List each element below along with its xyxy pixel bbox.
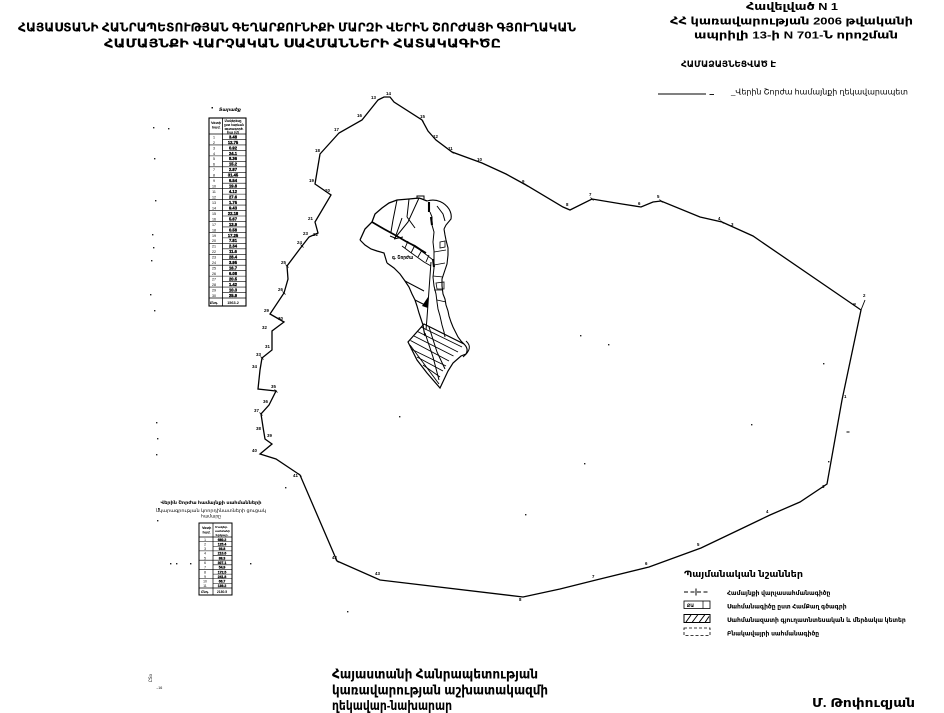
svg-text:Հայաստանի Հանրապետության: Հայաստանի Հանրապետության [332, 667, 538, 682]
svg-text:ՀԱՅԱՍՏԱՆԻ ՀԱՆՐԱՊԵՏՈՒԹՅԱՆ ԳԵՂԱՐ: ՀԱՅԱՍՏԱՆԻ ՀԱՆՐԱՊԵՏՈՒԹՅԱՆ ԳԵՂԱՐՔՈՒՆԻՔԻ ՄԱ… [18, 21, 576, 35]
svg-text:3.48: 3.48 [229, 134, 238, 139]
svg-text:10.3: 10.3 [229, 287, 238, 292]
svg-text:12: 12 [433, 134, 438, 139]
svg-text:4: 4 [204, 552, 206, 556]
svg-text:9: 9 [213, 179, 215, 183]
svg-text:13.9: 13.9 [229, 222, 238, 227]
svg-text:9: 9 [204, 575, 206, 579]
svg-text:Սահմանագիծը ըստ ՀամՔաղ գծագրի: Սահմանագիծը ըստ ՀամՔաղ գծագրի [727, 605, 847, 611]
svg-text:27: 27 [212, 278, 216, 282]
svg-text:4: 4 [213, 152, 215, 156]
svg-text:19.8: 19.8 [229, 184, 238, 189]
svg-text:համ.: համ. [203, 531, 211, 535]
svg-text:ՀԱՄԱՅՆՔԻ ՎԱՐՉԱԿԱՆ ՍԱՀՄԱՆՆԵՐԻ: ՀԱՄԱՅՆՔԻ ՎԱՐՉԱԿԱՆ ՍԱՀՄԱՆՆԵՐԻ ՀԱՏԱԿԱԳԻԾԸ [104, 37, 501, 51]
svg-text:29: 29 [264, 308, 269, 313]
svg-text:կառավարության աշխատակազմի: կառավարության աշխատակազմի [332, 683, 548, 698]
svg-text:5: 5 [213, 157, 215, 161]
svg-text:39: 39 [267, 433, 272, 438]
svg-text:11: 11 [448, 146, 453, 151]
svg-text:նկարագրության կոորդինատների ցո: նկարագրության կոորդինատների ցուցակ [155, 508, 266, 513]
svg-text:28: 28 [212, 283, 216, 287]
svg-text:15: 15 [420, 114, 425, 119]
svg-text:10: 10 [212, 185, 216, 189]
svg-text:38: 38 [256, 426, 261, 431]
svg-text:Սահմանազատի գյուղատնտեսական և: Սահմանազատի գյուղատնտեսական և մերձակա կե… [727, 618, 906, 624]
svg-text:12.75: 12.75 [228, 140, 239, 145]
svg-text:43: 43 [375, 571, 380, 576]
svg-text:25: 25 [212, 267, 216, 271]
svg-text:Ընդ.: Ընդ. [210, 301, 218, 305]
svg-text:2.34: 2.34 [229, 244, 238, 249]
svg-text:1.75: 1.75 [229, 200, 238, 205]
svg-text:172.5: 172.5 [218, 570, 227, 574]
svg-text:երկար.: երկար. [216, 533, 229, 537]
svg-text:2: 2 [204, 542, 206, 546]
svg-text:210.6: 210.6 [218, 552, 227, 556]
svg-text:29: 29 [212, 288, 216, 292]
svg-text:12: 12 [212, 196, 216, 200]
svg-text:16: 16 [212, 217, 216, 221]
svg-text:5.67: 5.67 [229, 216, 238, 221]
svg-text:16: 16 [357, 113, 362, 118]
svg-text:գ. Շորժա: գ. Շորժա [392, 255, 413, 261]
svg-text:24: 24 [212, 261, 216, 265]
svg-text:Ընդ.: Ընդ. [201, 590, 209, 594]
svg-text:11: 11 [203, 584, 207, 588]
svg-text:30: 30 [278, 316, 283, 321]
svg-text:25.9: 25.9 [229, 293, 238, 298]
svg-text:Հավելված N 1: Հավելված N 1 [746, 1, 838, 13]
svg-text:Պայմանական նշաններ: Պայմանական նշաններ [684, 569, 803, 579]
svg-text:54.9: 54.9 [219, 566, 226, 570]
svg-text:8: 8 [204, 570, 206, 574]
svg-text:66.7: 66.7 [219, 580, 226, 584]
svg-text:93.8: 93.8 [219, 547, 226, 551]
svg-text:20: 20 [325, 188, 330, 193]
svg-text:88.3: 88.3 [219, 556, 226, 560]
svg-text:21: 21 [212, 245, 216, 249]
svg-text:15.2: 15.2 [229, 162, 238, 167]
svg-text:16.7: 16.7 [229, 266, 238, 271]
svg-text:18: 18 [315, 148, 320, 153]
svg-text:ՔԱ: ՔԱ [687, 603, 694, 608]
svg-text:ՀՀ կառավարության 2006 թվականի: ՀՀ կառավարության 2006 թվականի [670, 16, 913, 28]
svg-text:0.92: 0.92 [229, 145, 238, 150]
svg-text:15: 15 [212, 212, 216, 216]
svg-text:7: 7 [213, 168, 215, 172]
svg-text:11.6: 11.6 [229, 249, 237, 254]
svg-text:26: 26 [278, 287, 283, 292]
svg-text:37: 37 [254, 408, 259, 413]
svg-text:25: 25 [281, 260, 286, 265]
svg-text:17: 17 [212, 223, 216, 227]
svg-text:23: 23 [212, 256, 216, 260]
svg-text:ՀԱՄԱՁԱՅՆԵՑՎԱԾ Է: ՀԱՄԱՁԱՅՆԵՑՎԱԾ Է [681, 59, 776, 69]
svg-text:18: 18 [212, 228, 216, 232]
svg-text:13: 13 [212, 201, 216, 205]
svg-text:23: 23 [303, 231, 308, 236]
svg-text:Կետի: Կետի [202, 526, 211, 530]
svg-text:24: 24 [297, 240, 302, 245]
svg-text:6: 6 [213, 163, 215, 167]
svg-text:125.4: 125.4 [218, 542, 227, 546]
svg-text:17.25: 17.25 [228, 233, 239, 238]
svg-text:22.18: 22.18 [228, 211, 239, 216]
svg-text:համ.: համ. [212, 126, 221, 130]
svg-text:19: 19 [212, 234, 216, 238]
svg-text:7.81: 7.81 [229, 238, 238, 243]
svg-text:2: 2 [213, 141, 215, 145]
svg-text:6.54: 6.54 [229, 178, 238, 183]
svg-text:36: 36 [263, 399, 268, 404]
svg-text:28.4: 28.4 [229, 255, 238, 260]
svg-text:_Վերին Շորժա համայնքի ղեկավար: _Վերին Շորժա համայնքի ղեկավարապետ [730, 88, 908, 97]
svg-text:241.8: 241.8 [218, 575, 227, 579]
svg-text:2180.5: 2180.5 [217, 590, 227, 594]
svg-text:307.1: 307.1 [218, 561, 227, 565]
svg-text:Մ. Թոփուզյան: Մ. Թոփուզյան [812, 696, 915, 710]
svg-text:Համայնքի վարչասահմանագիծը: Համայնքի վարչասահմանագիծը [727, 591, 831, 597]
svg-text:20.5: 20.5 [229, 277, 238, 282]
svg-text:4.12: 4.12 [229, 189, 238, 194]
svg-text:17: 17 [334, 127, 339, 132]
svg-text:14: 14 [386, 91, 391, 96]
svg-text:1: 1 [204, 538, 206, 542]
svg-text:5: 5 [204, 556, 206, 560]
svg-text:3: 3 [213, 146, 215, 150]
svg-text:42: 42 [332, 555, 337, 560]
svg-text:Տարածք: Տարածք [219, 107, 242, 112]
svg-text:31: 31 [265, 344, 270, 349]
svg-text:22: 22 [313, 232, 318, 237]
svg-text:7: 7 [204, 566, 206, 570]
svg-text:2.87: 2.87 [229, 167, 238, 172]
svg-text:9.43: 9.43 [229, 205, 238, 210]
svg-text:22: 22 [212, 250, 216, 254]
svg-text:34: 34 [252, 364, 257, 369]
svg-text:139.2: 139.2 [218, 584, 227, 588]
svg-text:21: 21 [308, 216, 313, 221]
svg-text:Վերին Շորժա համայնքի սահմաններ: Վերին Շորժա համայնքի սահմանների [161, 500, 262, 505]
svg-text:0.58: 0.58 [229, 227, 238, 232]
svg-text:ապրիլի 13-ի N 701-Ն որոշման: ապրիլի 13-ի N 701-Ն որոշման [694, 30, 898, 42]
svg-text:32: 32 [262, 325, 267, 330]
svg-text:համարը: համարը [201, 514, 221, 519]
svg-text:40: 40 [252, 448, 257, 453]
svg-text:14: 14 [212, 206, 216, 210]
svg-text:.-16: .-16 [156, 686, 162, 690]
svg-text:8: 8 [213, 174, 215, 178]
svg-text:10: 10 [477, 157, 482, 162]
svg-text:33: 33 [256, 352, 261, 357]
svg-text:ԸՏ3: ԸՏ3 [148, 673, 153, 682]
svg-text:Բնակավայրի սահմանագիծը: Բնակավայրի սահմանագիծը [727, 632, 819, 638]
svg-text:1.42: 1.42 [229, 282, 238, 287]
svg-text:680.2: 680.2 [218, 538, 227, 542]
svg-text:10: 10 [203, 580, 207, 584]
svg-text:6: 6 [204, 561, 206, 565]
svg-text:13: 13 [371, 95, 376, 100]
svg-text:19: 19 [309, 178, 314, 183]
svg-text:20: 20 [212, 239, 216, 243]
svg-text:26: 26 [212, 272, 216, 276]
svg-text:1: 1 [213, 135, 215, 139]
svg-text:35: 35 [271, 384, 276, 389]
svg-text:ղեկավար-նախարար: ղեկավար-նախարար [332, 698, 452, 713]
svg-text:8.36: 8.36 [229, 156, 238, 161]
svg-text:41: 41 [293, 473, 298, 478]
svg-text:24.1: 24.1 [229, 151, 238, 156]
svg-text:31.45: 31.45 [228, 173, 239, 178]
svg-text:3.95: 3.95 [229, 260, 238, 265]
svg-text:1563.2: 1563.2 [227, 301, 239, 305]
svg-text:30: 30 [212, 294, 216, 298]
svg-text:3: 3 [204, 547, 206, 551]
svg-text:Կետի: Կետի [211, 121, 221, 125]
svg-text:6.08: 6.08 [229, 271, 238, 276]
svg-text:11: 11 [212, 190, 216, 194]
svg-text:27.6: 27.6 [229, 195, 238, 200]
